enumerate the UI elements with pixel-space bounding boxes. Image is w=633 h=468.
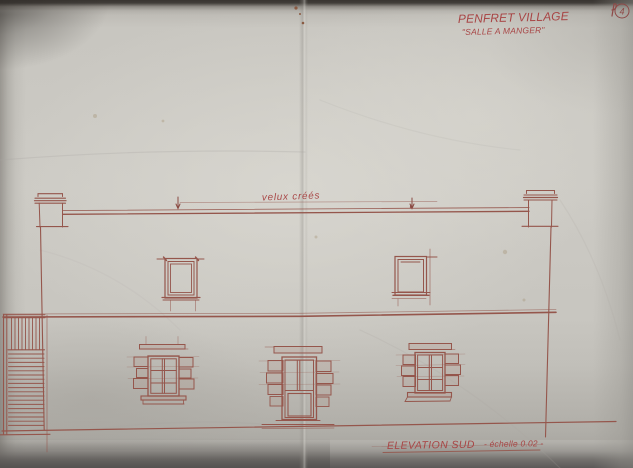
svg-text:PENFRET VILLAGE: PENFRET VILLAGE xyxy=(458,9,570,26)
svg-text:ELEVATION SUD: ELEVATION SUD xyxy=(387,439,475,452)
svg-text:"SALLE A MANGER": "SALLE A MANGER" xyxy=(462,25,546,37)
svg-text:- échelle 0.02 -: - échelle 0.02 - xyxy=(484,438,544,449)
svg-text:velux créés: velux créés xyxy=(262,190,321,203)
svg-text:4: 4 xyxy=(620,7,625,17)
